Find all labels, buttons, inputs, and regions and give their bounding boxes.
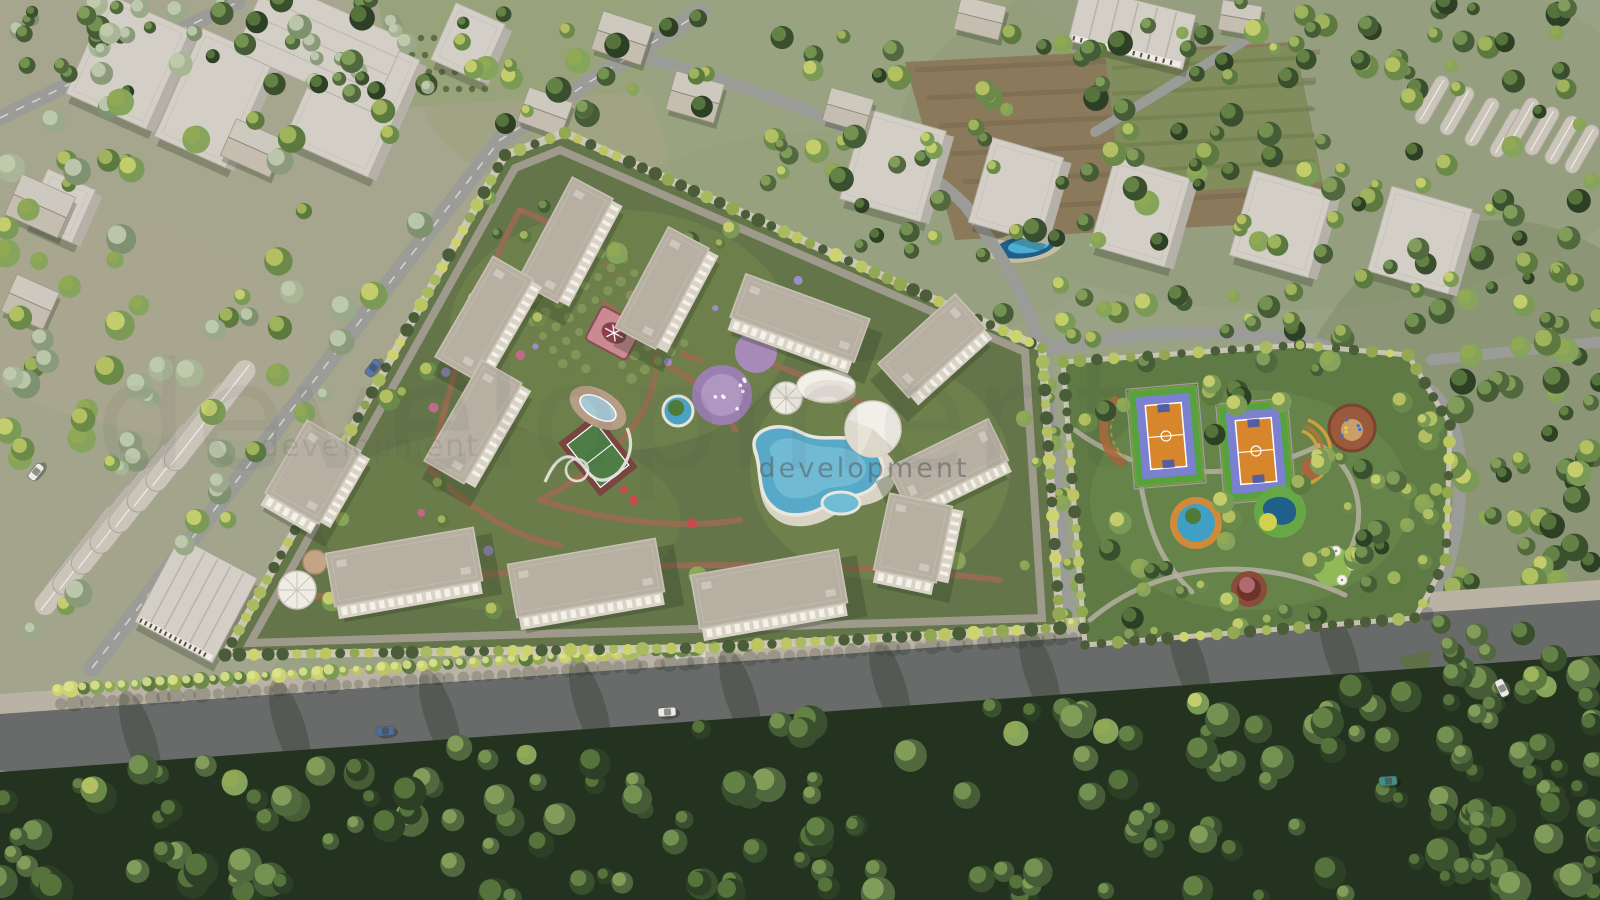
watermark: development development development [95, 331, 1137, 503]
aerial-render: development development development [0, 0, 1600, 900]
watermark-ghost-text: development [95, 331, 1137, 503]
sport-court [1126, 383, 1206, 489]
watermark-faint-text: development [260, 429, 480, 464]
watermark-text: development [758, 453, 969, 484]
render-canvas: development development development [0, 0, 1600, 900]
